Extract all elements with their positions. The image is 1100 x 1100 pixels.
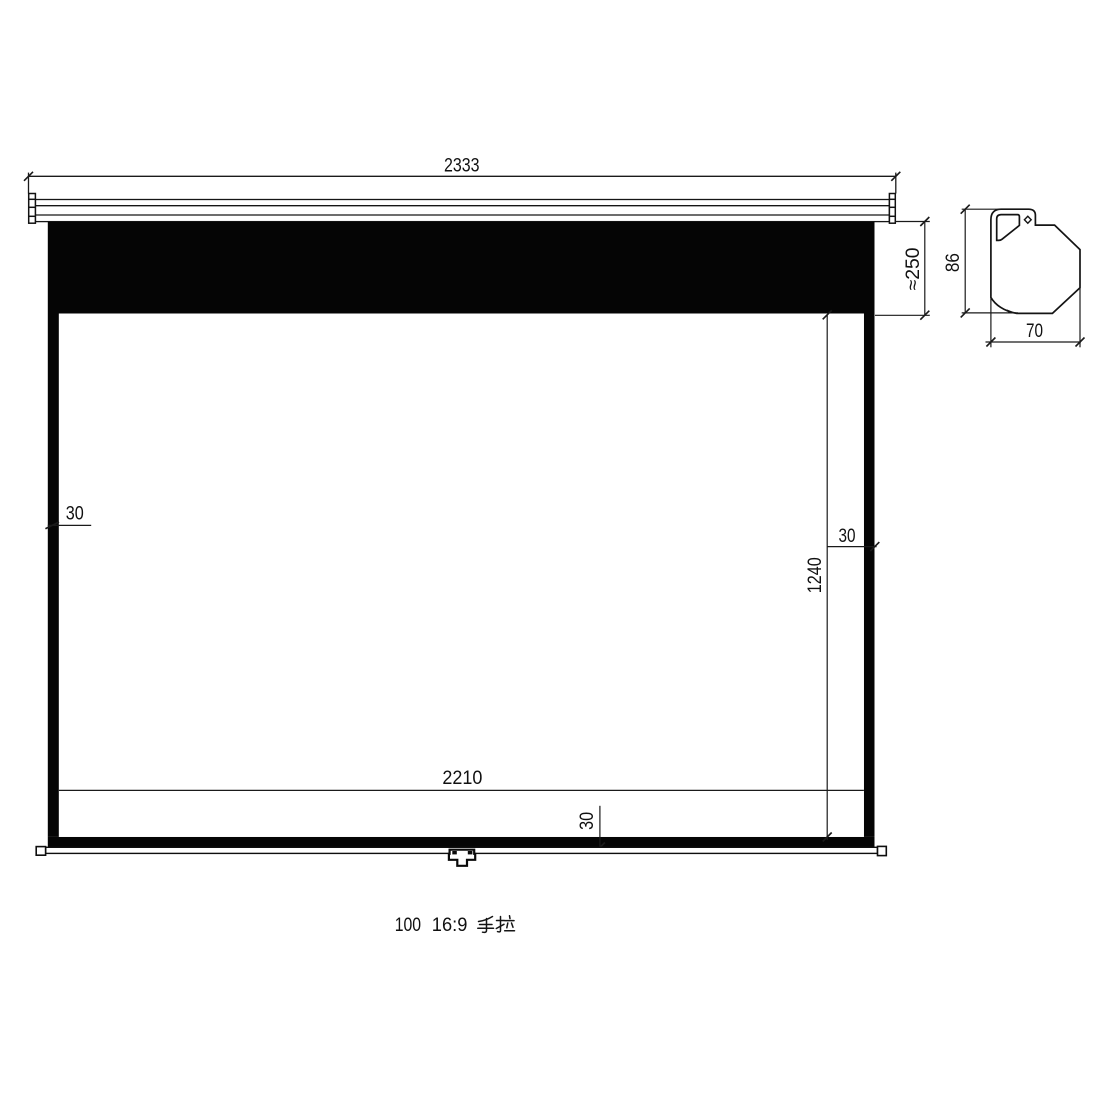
- svg-text:2333: 2333: [444, 156, 480, 177]
- svg-text:30: 30: [577, 812, 598, 830]
- svg-text:86: 86: [943, 253, 964, 272]
- svg-text:≈250: ≈250: [903, 247, 924, 290]
- svg-text:70: 70: [1026, 321, 1043, 342]
- svg-text:2210: 2210: [442, 768, 482, 789]
- svg-text:1240: 1240: [805, 557, 826, 593]
- svg-text:16:9: 16:9: [432, 915, 468, 936]
- svg-text:100: 100: [395, 915, 421, 936]
- svg-text:30: 30: [839, 526, 856, 547]
- svg-text:30: 30: [66, 504, 84, 525]
